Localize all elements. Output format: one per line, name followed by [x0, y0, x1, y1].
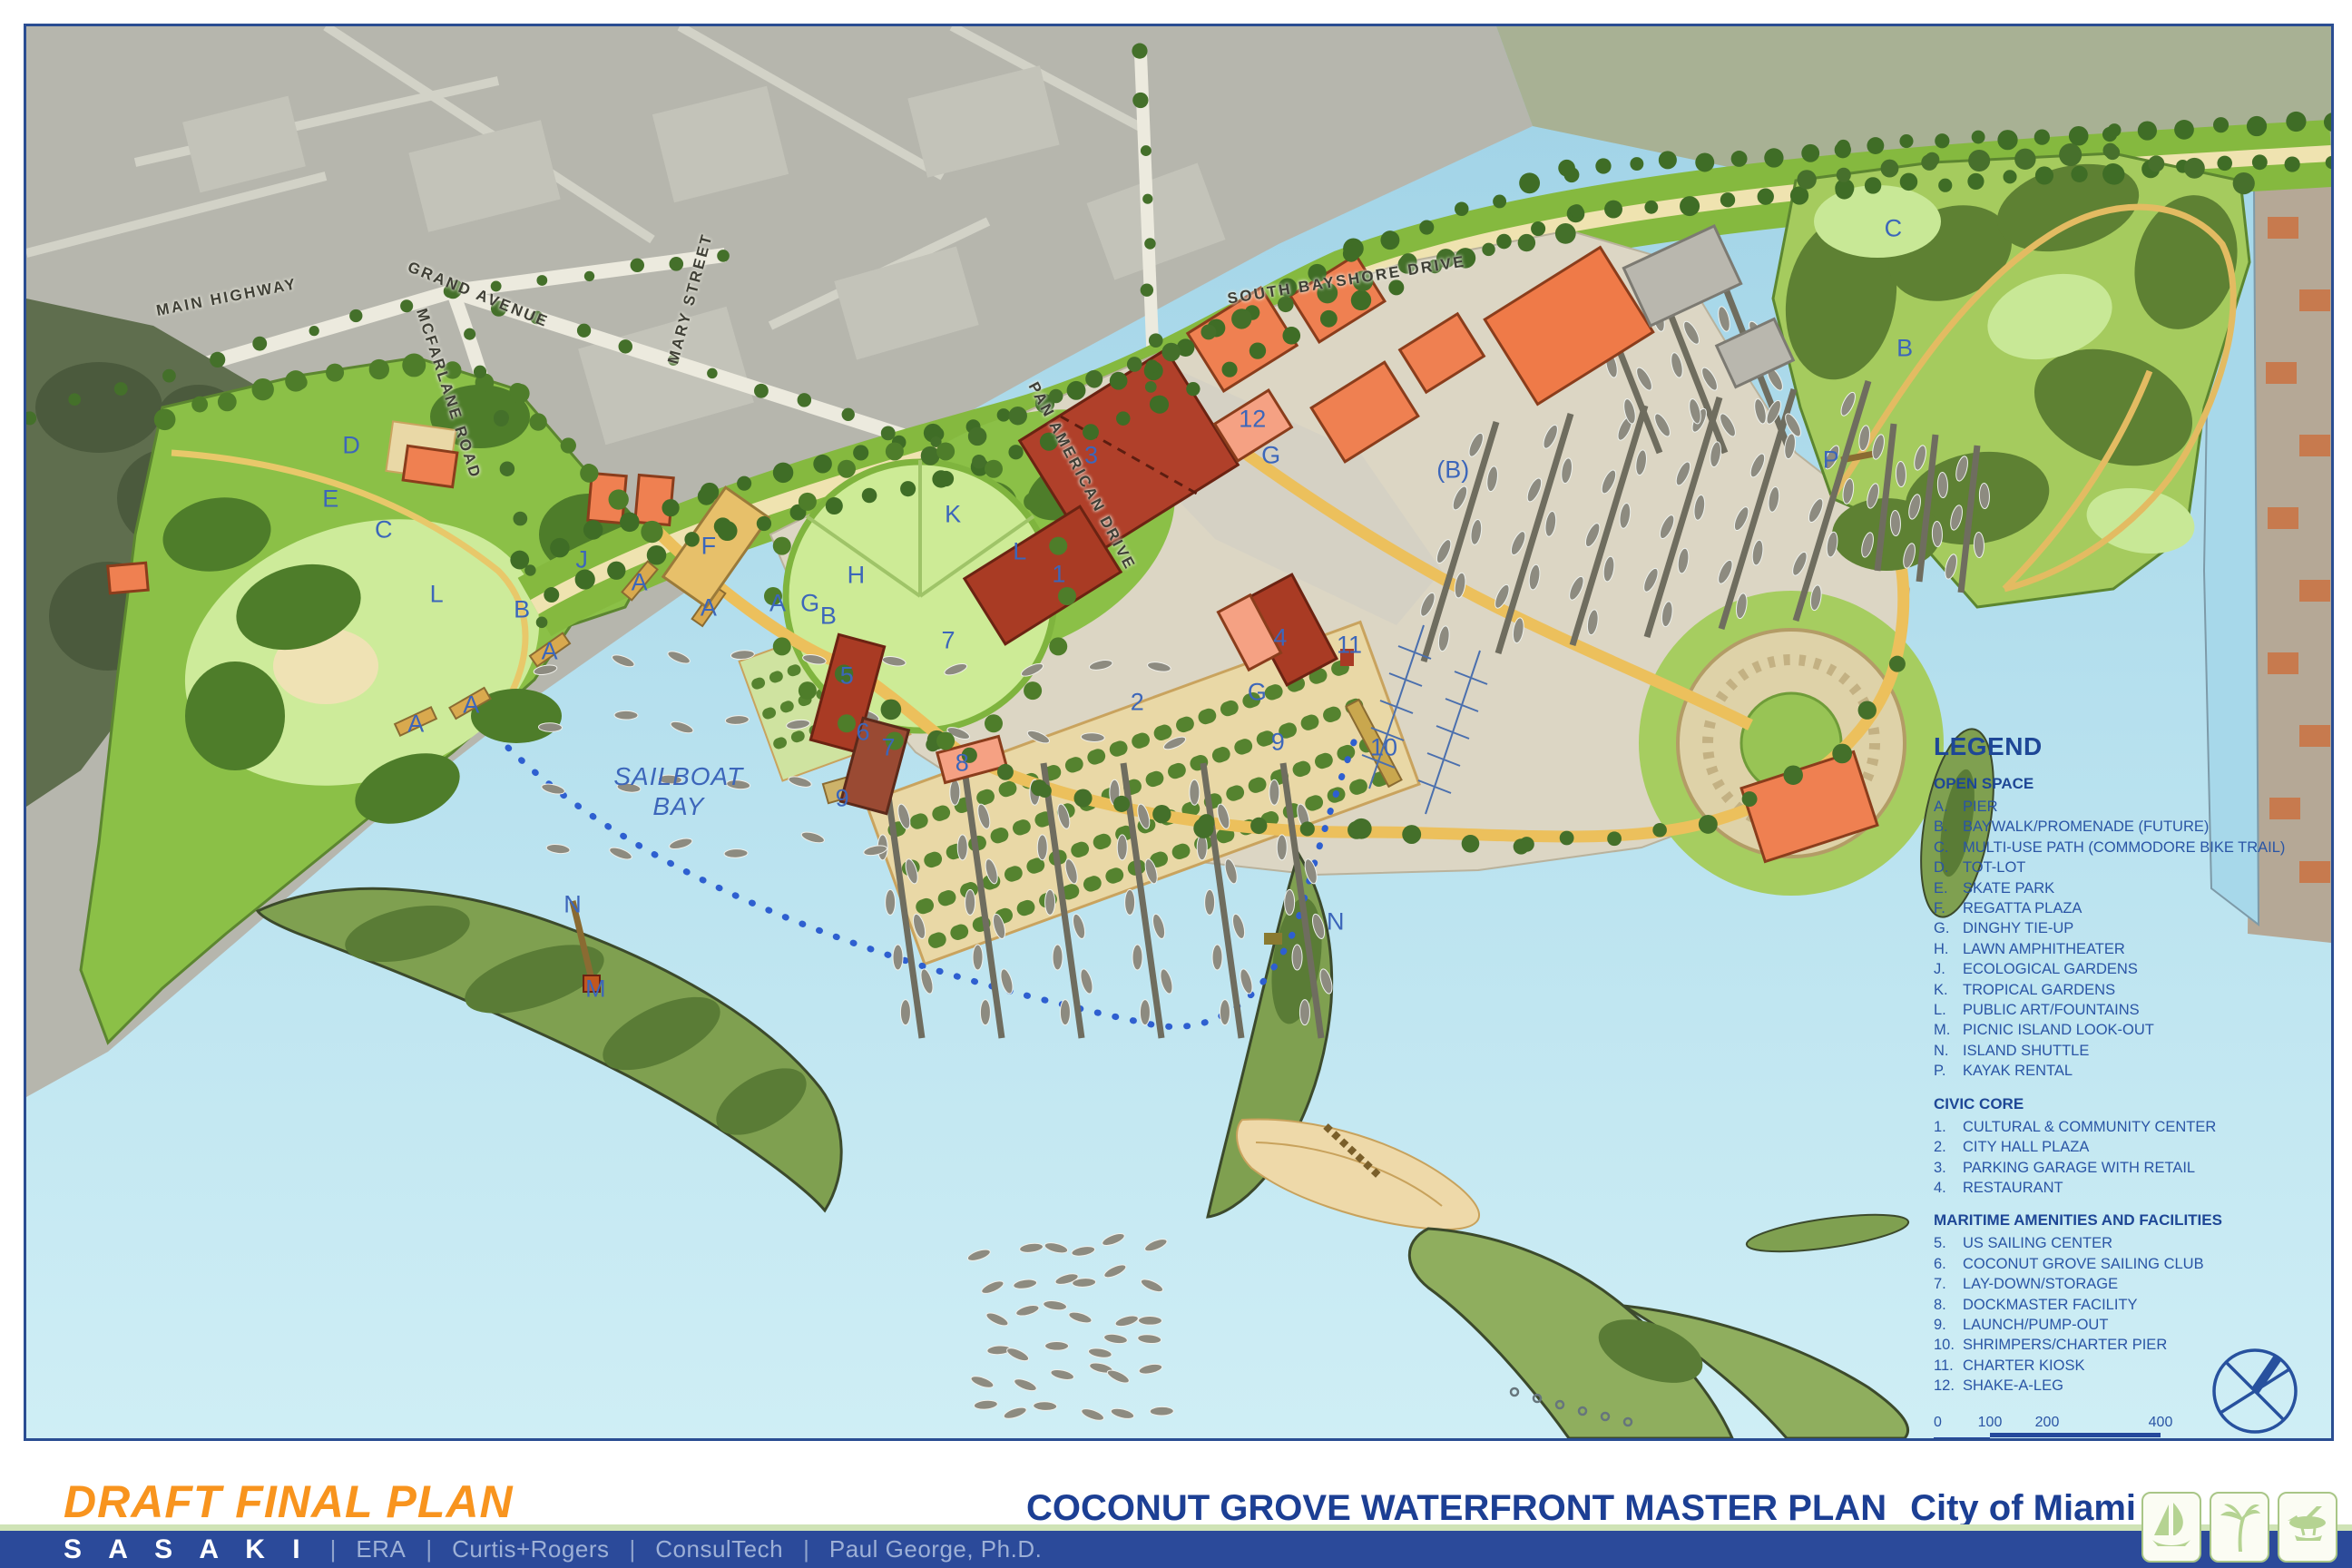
legend-item-label: LAWN AMPHITHEATER	[1963, 939, 2125, 959]
legend-item: D. TOT-LOT	[1934, 857, 2331, 877]
legend-item: 2. CITY HALL PLAZA	[1934, 1137, 2331, 1157]
consultant-bar: S A S A K I | ERA | Curtis+Rogers | Cons…	[0, 1531, 2352, 1568]
legend-item: 5. US SAILING CENTER	[1934, 1233, 2331, 1253]
legend-item: 6. COCONUT GROVE SAILING CLUB	[1934, 1254, 2331, 1274]
firm-separator: |	[330, 1535, 337, 1563]
legend-item-label: PICNIC ISLAND LOOK-OUT	[1963, 1020, 2154, 1040]
legend-item: 9. LAUNCH/PUMP-OUT	[1934, 1315, 2331, 1335]
legend-item: N. ISLAND SHUTTLE	[1934, 1041, 2331, 1061]
legend-title: LEGEND	[1934, 732, 2331, 761]
legend-item: G. DINGHY TIE-UP	[1934, 918, 2331, 938]
sailboat-icon	[2141, 1492, 2201, 1563]
legend-item-label: SHAKE-A-LEG	[1963, 1376, 2063, 1396]
legend-item-key: E.	[1934, 878, 1963, 898]
legend-item-key: K.	[1934, 980, 1963, 1000]
scale-tick: 0	[1934, 1415, 1942, 1431]
scale-bar-graphic	[1934, 1433, 2161, 1441]
legend-heading: CIVIC CORE	[1934, 1095, 2331, 1113]
legend: LEGEND OPEN SPACE A. PIER B. BAYWALK/PRO…	[1934, 732, 2331, 1441]
draft-status-title: DRAFT FINAL PLAN	[64, 1475, 514, 1528]
legend-item-label: KAYAK RENTAL	[1963, 1061, 2073, 1081]
legend-item-key: P.	[1934, 1061, 1963, 1081]
legend-item-label: LAY-DOWN/STORAGE	[1963, 1274, 2118, 1294]
legend-heading: MARITIME AMENITIES AND FACILITIES	[1934, 1211, 2331, 1230]
firm-separator: |	[803, 1535, 809, 1563]
legend-item-label: ECOLOGICAL GARDENS	[1963, 959, 2138, 979]
lookout-deck	[583, 975, 600, 992]
legend-item: A. PIER	[1934, 797, 2331, 817]
legend-item-label: PIER	[1963, 797, 1998, 817]
legend-item-key: D.	[1934, 857, 1963, 877]
legend-item: L. PUBLIC ART/FOUNTAINS	[1934, 1000, 2331, 1020]
legend-item-label: SKATE PARK	[1963, 878, 2054, 898]
legend-item-label: SHRIMPERS/CHARTER PIER	[1963, 1335, 2167, 1355]
legend-item-key: G.	[1934, 918, 1963, 938]
legend-item-label: RESTAURANT	[1963, 1178, 2063, 1198]
legend-item: M. PICNIC ISLAND LOOK-OUT	[1934, 1020, 2331, 1040]
legend-item-label: US SAILING CENTER	[1963, 1233, 2112, 1253]
green-divider	[0, 1524, 2352, 1531]
legend-item-label: BAYWALK/PROMENADE (FUTURE)	[1963, 817, 2209, 837]
legend-items: 1. CULTURAL & COMMUNITY CENTER 2. CITY H…	[1934, 1117, 2331, 1199]
legend-item-key: 6.	[1934, 1254, 1963, 1274]
legend-item: 7. LAY-DOWN/STORAGE	[1934, 1274, 2331, 1294]
legend-item-label: LAUNCH/PUMP-OUT	[1963, 1315, 2108, 1335]
legend-item: K. TROPICAL GARDENS	[1934, 980, 2331, 1000]
legend-item: F. REGATTA PLAZA	[1934, 898, 2331, 918]
legend-item-key: 3.	[1934, 1158, 1963, 1178]
legend-section-open-space: OPEN SPACE A. PIER B. BAYWALK/PROMENADE …	[1934, 775, 2331, 1082]
legend-item-label: REGATTA PLAZA	[1963, 898, 2082, 918]
plan-title: COCONUT GROVE WATERFRONT MASTER PLANCity…	[1026, 1488, 2136, 1529]
scale-tick: 200	[2035, 1415, 2060, 1431]
legend-item-key: H.	[1934, 939, 1963, 959]
legend-item: P. KAYAK RENTAL	[1934, 1061, 2331, 1081]
legend-item-label: CULTURAL & COMMUNITY CENTER	[1963, 1117, 2216, 1137]
legend-item-key: C.	[1934, 838, 1963, 857]
legend-item-key: 12.	[1934, 1376, 1963, 1396]
firm-name: ConsulTech	[655, 1535, 783, 1563]
scale-bar: 0 100 200 400	[1934, 1415, 2161, 1441]
legend-item-key: 9.	[1934, 1315, 1963, 1335]
legend-section-civic-core: CIVIC CORE 1. CULTURAL & COMMUNITY CENTE…	[1934, 1095, 2331, 1199]
legend-item-label: MULTI-USE PATH (COMMODORE BIKE TRAIL)	[1963, 838, 2285, 857]
legend-item-label: CITY HALL PLAZA	[1963, 1137, 2089, 1157]
legend-item: E. SKATE PARK	[1934, 878, 2331, 898]
scale-ticks: 0 100 200 400	[1934, 1415, 2161, 1433]
legend-item-key: N.	[1934, 1041, 1963, 1061]
firm-name: ERA	[356, 1535, 406, 1563]
seaplane-icon	[2278, 1492, 2337, 1563]
plan-title-text: COCONUT GROVE WATERFRONT MASTER PLAN	[1026, 1488, 1886, 1528]
palm-tree-icon	[2210, 1492, 2269, 1563]
firm-list: | ERA | Curtis+Rogers | ConsulTech | Pau…	[310, 1535, 1043, 1563]
bay-label-line1: SAILBOAT	[613, 761, 743, 791]
legend-item-label: CHARTER KIOSK	[1963, 1356, 2084, 1376]
island-hut	[1264, 933, 1282, 945]
legend-items: A. PIER B. BAYWALK/PROMENADE (FUTURE) C.…	[1934, 797, 2331, 1082]
legend-item-key: A.	[1934, 797, 1963, 817]
scale-tick: 100	[1978, 1415, 2003, 1431]
legend-item-key: 1.	[1934, 1117, 1963, 1137]
firm-separator: |	[629, 1535, 635, 1563]
legend-item-key: 10.	[1934, 1335, 1963, 1355]
legend-item-label: TROPICAL GARDENS	[1963, 980, 2115, 1000]
bay-label-line2: BAY	[613, 791, 743, 821]
north-arrow-icon	[2208, 1344, 2302, 1438]
legend-item-key: 7.	[1934, 1274, 1963, 1294]
legend-item-label: PUBLIC ART/FOUNTAINS	[1963, 1000, 2140, 1020]
client-name: City of Miami	[1910, 1488, 2136, 1528]
legend-item-key: B.	[1934, 817, 1963, 837]
legend-item-label: DOCKMASTER FACILITY	[1963, 1295, 2138, 1315]
legend-item-label: ISLAND SHUTTLE	[1963, 1041, 2089, 1061]
legend-item-key: 8.	[1934, 1295, 1963, 1315]
legend-item-label: DINGHY TIE-UP	[1963, 918, 2073, 938]
legend-heading: OPEN SPACE	[1934, 775, 2331, 793]
legend-item-key: M.	[1934, 1020, 1963, 1040]
legend-item-label: COCONUT GROVE SAILING CLUB	[1963, 1254, 2204, 1274]
legend-item: 8. DOCKMASTER FACILITY	[1934, 1295, 2331, 1315]
legend-item-key: 2.	[1934, 1137, 1963, 1157]
legend-item-key: F.	[1934, 898, 1963, 918]
firm-sasaki: S A S A K I	[64, 1534, 310, 1565]
legend-item-label: PARKING GARAGE WITH RETAIL	[1963, 1158, 2195, 1178]
firm-name: Curtis+Rogers	[452, 1535, 609, 1563]
sailboat-bay-label: SAILBOAT BAY	[613, 761, 743, 821]
charter-kiosk	[1340, 649, 1354, 666]
legend-item-label: TOT-LOT	[1963, 857, 2025, 877]
firm-name: Paul George, Ph.D.	[829, 1535, 1042, 1563]
legend-item: J. ECOLOGICAL GARDENS	[1934, 959, 2331, 979]
scale-tick: 400	[2149, 1415, 2173, 1431]
legend-item: H. LAWN AMPHITHEATER	[1934, 939, 2331, 959]
legend-item: B. BAYWALK/PROMENADE (FUTURE)	[1934, 817, 2331, 837]
legend-item: 4. RESTAURANT	[1934, 1178, 2331, 1198]
legend-item: 1. CULTURAL & COMMUNITY CENTER	[1934, 1117, 2331, 1137]
legend-item: 3. PARKING GARAGE WITH RETAIL	[1934, 1158, 2331, 1178]
firm-separator: |	[426, 1535, 432, 1563]
legend-item: C. MULTI-USE PATH (COMMODORE BIKE TRAIL)	[1934, 838, 2331, 857]
legend-item-key: 11.	[1934, 1356, 1963, 1376]
master-plan-map: MAIN HIGHWAYGRAND AVENUEMCFARLANE ROADMA…	[24, 24, 2334, 1441]
legend-item-key: 5.	[1934, 1233, 1963, 1253]
legend-item-key: 4.	[1934, 1178, 1963, 1198]
legend-item-key: L.	[1934, 1000, 1963, 1020]
legend-item-key: J.	[1934, 959, 1963, 979]
logo-badges	[2141, 1492, 2337, 1563]
